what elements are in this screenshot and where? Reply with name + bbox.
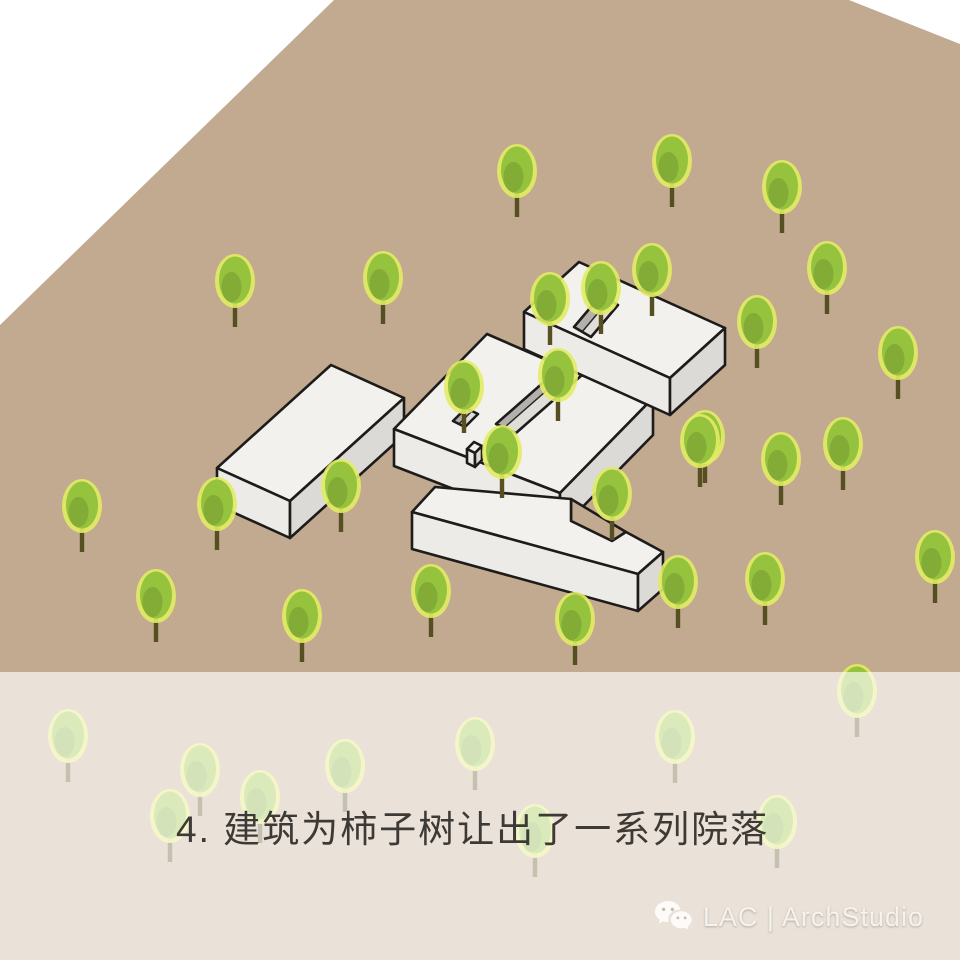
watermark-label: LAC | ArchStudio [703,902,924,933]
site-diagram: 4. 建筑为柿子树让出了一系列院落 LAC | ArchStudio [0,0,960,960]
wechat-icon [654,900,694,934]
diagram-caption: 4. 建筑为柿子树让出了一系列院落 [176,799,769,853]
watermark: LAC | ArchStudio [654,900,924,934]
